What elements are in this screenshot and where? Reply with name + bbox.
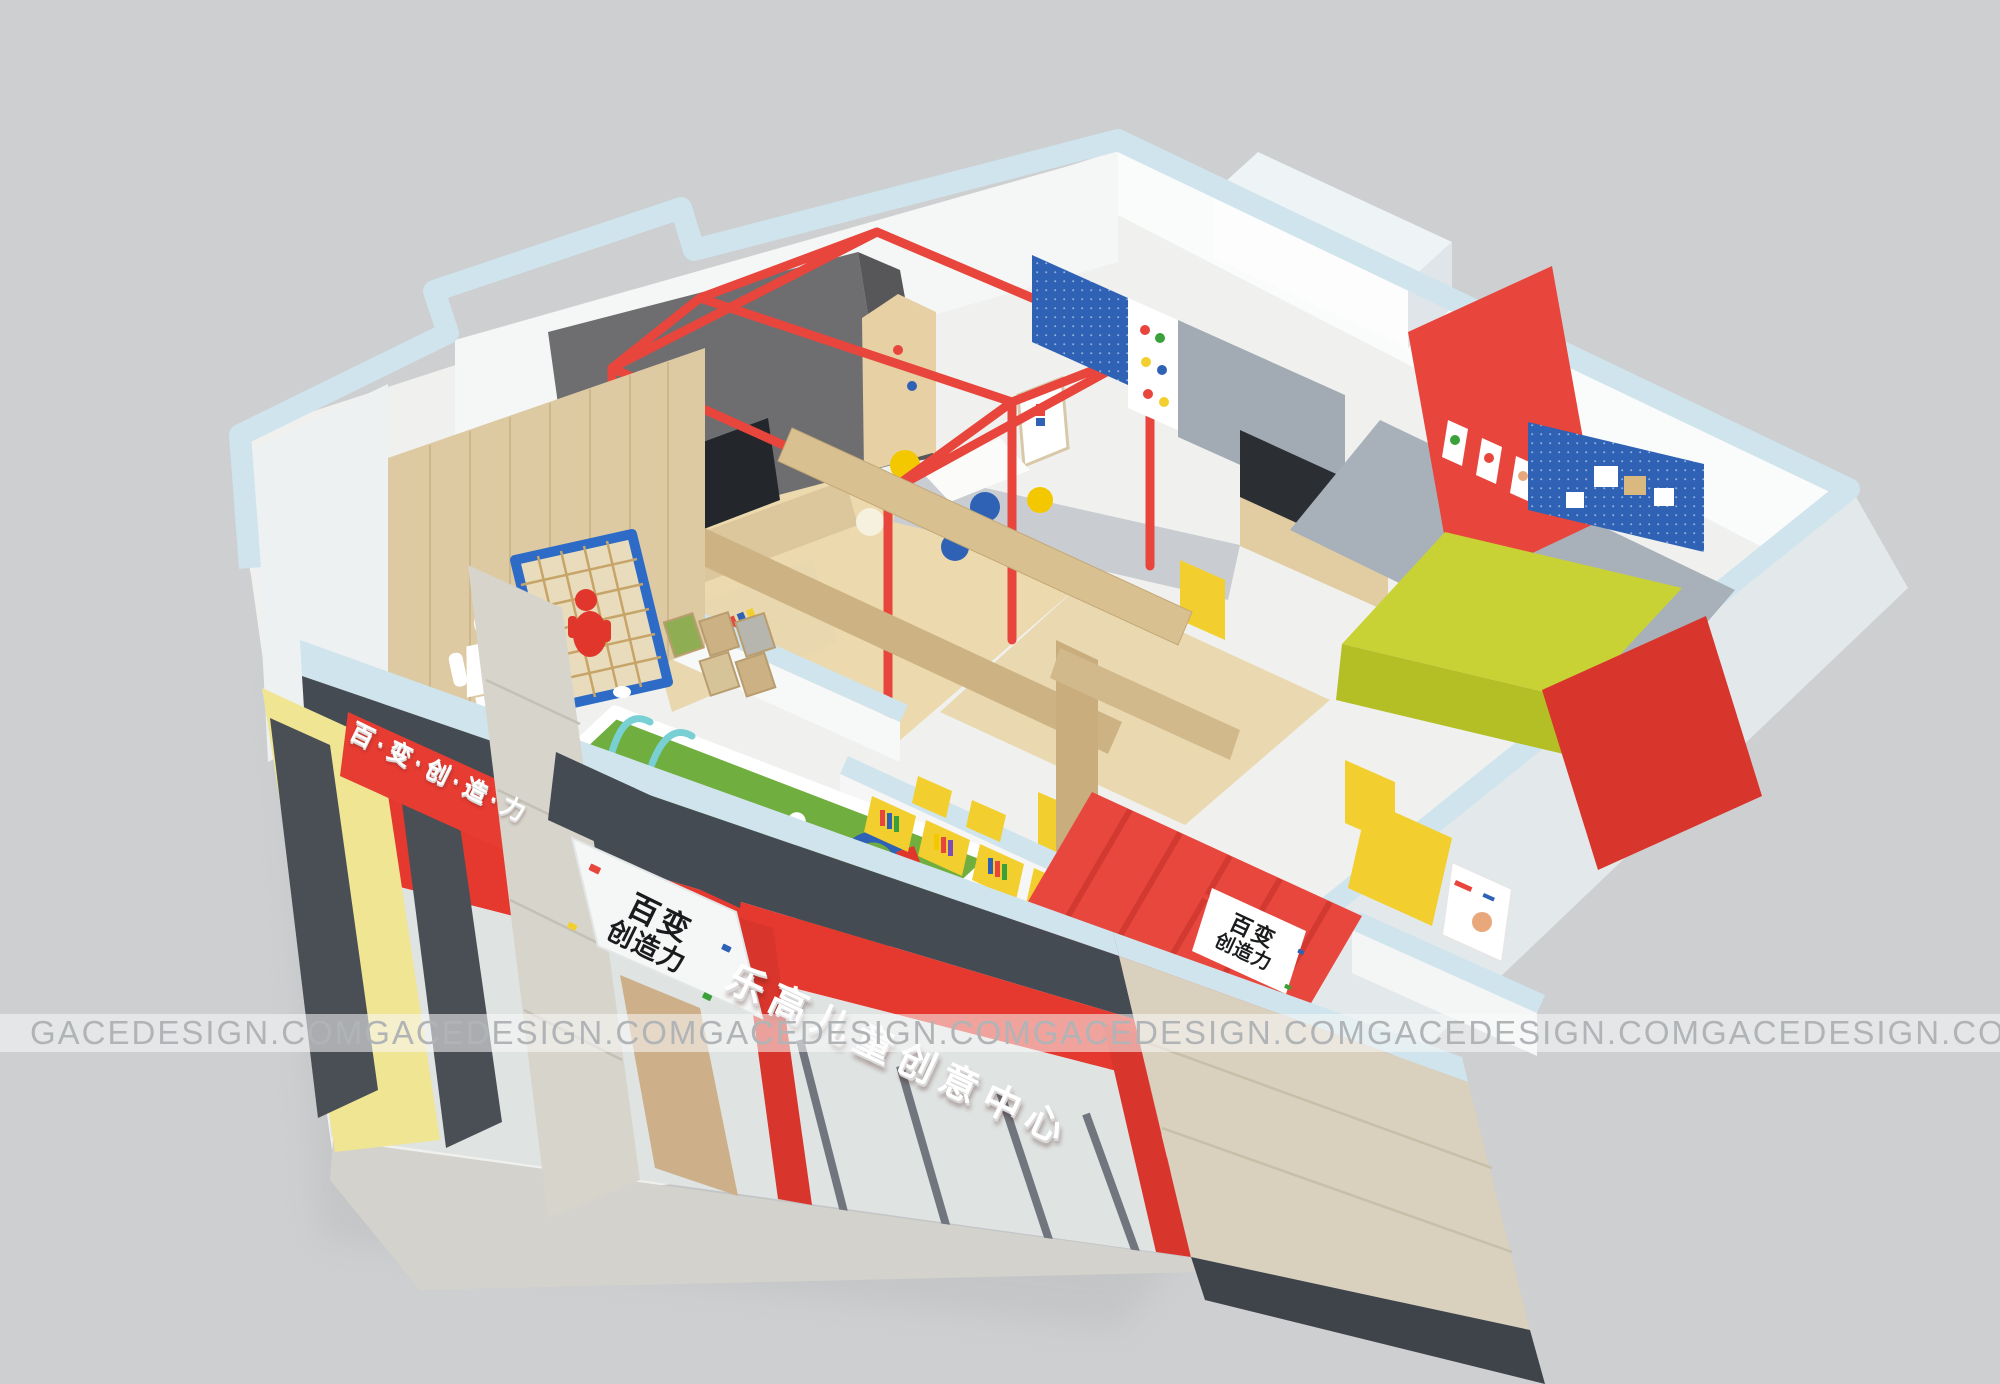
- render-canvas: 乐高儿童创意中心 百·变·创·造·力 百变 创造力 百变 创造力 GACEDES…: [0, 0, 2000, 1384]
- watermark-text: GACEDESIGN.COM: [1033, 1014, 1367, 1052]
- watermark-text: GACEDESIGN.COM: [1701, 1014, 2000, 1052]
- isometric-scene: [0, 0, 2000, 1384]
- picture-figure-blue: [1036, 418, 1045, 426]
- goose-sculpture: [613, 686, 631, 698]
- watermark-text: GACEDESIGN.COM: [1367, 1014, 1701, 1052]
- watermark-band: GACEDESIGN.COM GACEDESIGN.COM GACEDESIGN…: [0, 1014, 2000, 1052]
- shelf-toy-blue: [907, 381, 917, 391]
- house-shelf: [862, 294, 936, 472]
- shelf-toy-red: [893, 345, 903, 355]
- chair-cream: [856, 508, 884, 536]
- chair-yellow-2: [1027, 487, 1053, 513]
- watermark-text: GACEDESIGN.COM: [364, 1014, 698, 1052]
- watermark-text: GACEDESIGN.COM: [30, 1014, 364, 1052]
- watermark-text: GACEDESIGN.COM: [698, 1014, 1032, 1052]
- toy-shelf-column: [1128, 298, 1178, 430]
